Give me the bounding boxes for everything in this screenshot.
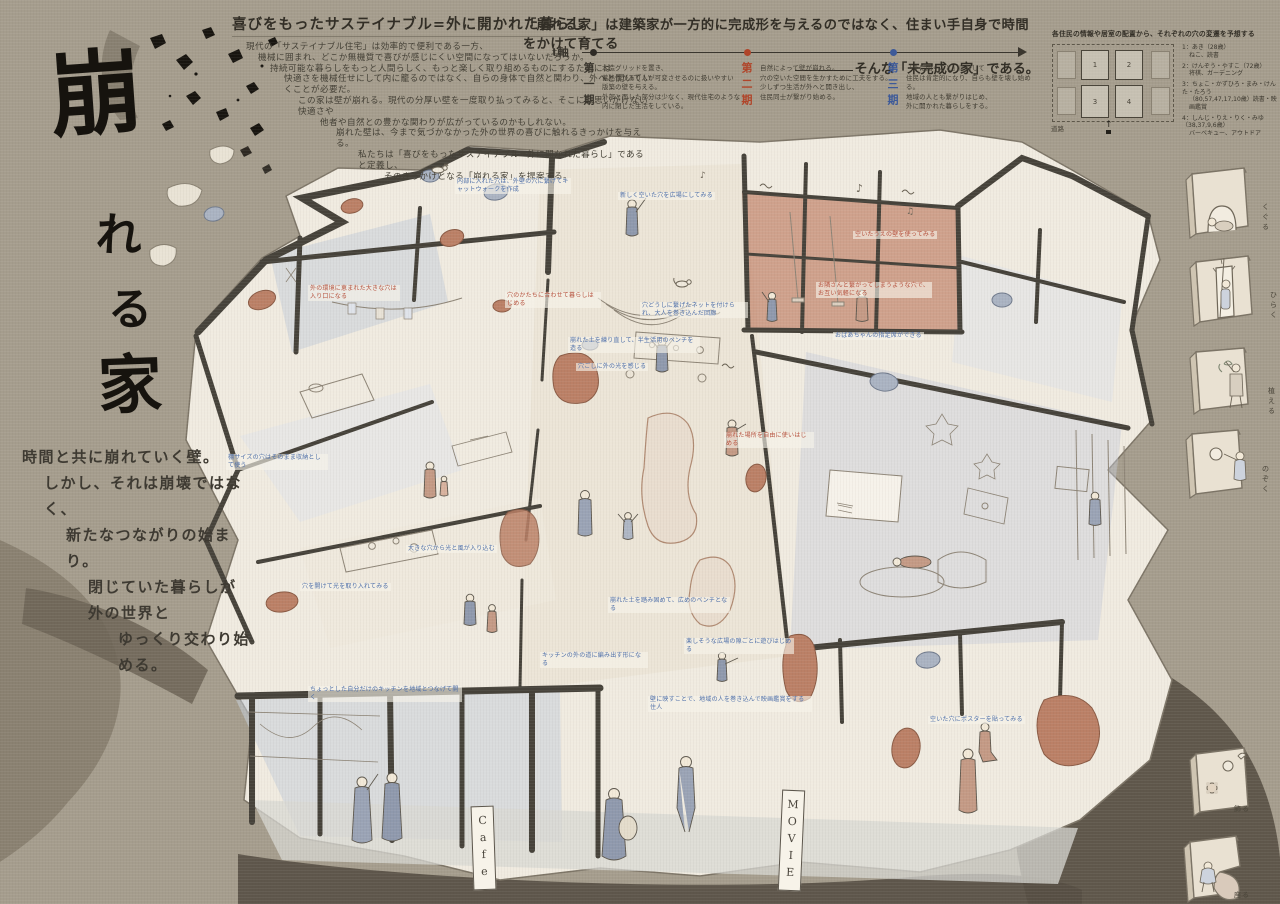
- title-char-kuzu: 崩: [47, 45, 145, 143]
- svg-text:♪: ♪: [856, 182, 863, 195]
- cafe-sign: Cafe: [471, 806, 497, 891]
- annotation-label: 空いたうえの壁を使ってみる: [853, 231, 937, 239]
- annotation-label: 穴のかたちに合わせて暮らしはじめる: [505, 292, 601, 308]
- resident-name: 2：けんぞう・やすこ（72歳）: [1182, 63, 1278, 71]
- residents-legend: 各住民の情報や居室の配置から、それぞれの穴の変遷を予想する 1 2 3 4 道路…: [1052, 28, 1278, 141]
- vignette-kuguru: くぐる: [1180, 162, 1276, 242]
- period-2-line: 少しずつ生活が外へと開き出し、: [760, 83, 892, 93]
- plan-outer-cell: [1151, 51, 1170, 79]
- plan-outer-cell: [1057, 51, 1076, 79]
- period-1-line: 版築の壁を与える。: [602, 83, 740, 93]
- annotation-label: 外の環境に恵まれた大きな穴は入り口になる: [308, 285, 400, 301]
- title-char-ru: る: [108, 288, 152, 332]
- svg-text:♫: ♫: [906, 207, 914, 217]
- period-2-line: 自然によって壁が崩れる。: [760, 64, 892, 74]
- annotation-label: ちょっとした自分だけのキッチンを地域とつなげて開く: [308, 686, 462, 702]
- annotation-label: 穴どうしに繋げたネットを付けられ、大人を巻き込んだ回廊: [640, 302, 748, 318]
- vignette-hiraku: ひらく: [1186, 248, 1280, 328]
- period-3-label: 第三期: [884, 62, 900, 136]
- poem-block: 時間と共に崩れていく壁。 しかし、それは崩壊ではなく、 新たなつながりの始まり。…: [22, 444, 252, 678]
- t-axis-label: t軸: [552, 44, 569, 60]
- plan-cell-2: 2: [1115, 50, 1143, 80]
- period-2-line: 住民同士が繋がり始める。: [760, 93, 892, 103]
- period-2-line: 穴の空いた空間を生かすために工夫をする。: [760, 74, 892, 84]
- period-3: 第三期 「外に開くこと」に対して 住民は肯定的になり、自らも壁を壊し始める。 地…: [884, 62, 1040, 136]
- period2-dot: [744, 49, 751, 56]
- annotation-label: 新しく空いた穴を広場にしてみる: [618, 192, 715, 200]
- vignette-nozoku-drawing: [1180, 420, 1258, 500]
- vignette-ueru-drawing: [1184, 338, 1262, 418]
- annotation-label: 大きな穴から光と風が入り込む: [406, 545, 497, 553]
- annotation-label: 崩れた土を踏み固めて、広めのベンチとなる: [608, 597, 730, 613]
- period-1-label: 第一期: [580, 62, 596, 136]
- resident-name: 3：ちょこ・かずひろ・まみ・けんた・たろう: [1182, 81, 1278, 96]
- residents-list: 1：あき（28歳） ねこ、読書 2：けんぞう・やすこ（72歳） 将棋、ガーデニン…: [1182, 44, 1278, 141]
- intro-line: 私たちは「喜びをもったサステイナブル=外に開かれた暮らし」であると定義し、: [358, 150, 652, 172]
- poem-line: しかし、それは崩壊ではなく、: [44, 470, 252, 522]
- t-axis-arrowhead: [1018, 47, 1027, 57]
- vignette-label: 飾る: [1234, 804, 1250, 814]
- road-label: 道路: [1051, 123, 1064, 133]
- vignette-label: くぐる: [1262, 202, 1276, 232]
- title-char-ie: 家: [97, 353, 163, 419]
- legend-title: 各住民の情報や居室の配置から、それぞれの穴の変遷を予想する: [1052, 28, 1278, 38]
- timeline: t軸 第一期 木造グリッドを置き、 蓄熱性があり人が可変させるのに扱いやすい 版…: [548, 42, 1040, 142]
- period-1-line: 外部と面した部分は少なく、現代住宅のような: [602, 93, 740, 103]
- resident-entry: 1：あき（28歳） ねこ、読書: [1182, 44, 1278, 59]
- entrance-arrow-icon: ↑: [1105, 121, 1113, 134]
- vignette-suwaru: 座る: [1178, 826, 1274, 904]
- poem-line: 新たなつながりの始まり。: [66, 522, 252, 574]
- period-1-line: 内に閉じた生活をしている。: [602, 102, 740, 112]
- period-2-label: 第二期: [738, 62, 754, 136]
- plan-outer-cell: [1151, 87, 1170, 115]
- period3-dot: [890, 49, 897, 56]
- annotation-label: 空いた穴にポスターを貼ってみる: [928, 716, 1025, 724]
- svg-text:♪: ♪: [700, 171, 706, 181]
- resident-entry: 2：けんぞう・やすこ（72歳） 将棋、ガーデニング: [1182, 63, 1278, 78]
- presentation-board: ♪ ♪ ♫ 崩 れ る 家 喜びをもったサステイナ: [0, 0, 1280, 904]
- annotation-label: 棚サイズの穴はそのまま収納として使う: [226, 454, 328, 470]
- annotation-label: 崩れた場所を自由に使いはじめる: [724, 432, 814, 448]
- period1-dot: [590, 49, 597, 56]
- vignette-kazaru: 飾る: [1184, 738, 1280, 818]
- vignette-label: のぞく: [1262, 464, 1276, 494]
- annotation-label: おばあちゃんの指定席ができる: [833, 332, 924, 340]
- vignette-label: ひらく: [1270, 290, 1280, 320]
- annotation-label: 穴ごしに外の光を感じる: [576, 363, 648, 371]
- annotation-label: 内部に入れた穴は、外壁の穴に繋げてキャットウォークを作成: [455, 178, 571, 194]
- annotation-label: キッチンの外の道に編み出す形になる: [540, 652, 648, 668]
- poem-line: 時間と共に崩れていく壁。: [22, 444, 252, 470]
- annotation-label: 崩れた土を練り直して、半生活用のベンチを造る: [568, 337, 700, 353]
- title-char-re: れ: [95, 211, 143, 259]
- period-1-line: 木造グリッドを置き、: [602, 64, 740, 74]
- plan-outer-cell: [1057, 87, 1076, 115]
- plan-cell-3: 3: [1081, 85, 1109, 118]
- period-3-line: 住民は肯定的になり、自らも壁を壊し始める。: [906, 74, 1040, 93]
- annotation-label: 壁に映すことで、地域の人を巻き込んで映画鑑賞をする住人: [648, 696, 812, 712]
- vignette-kuguru-drawing: [1180, 162, 1258, 242]
- resident-name: 1：あき（28歳）: [1182, 44, 1278, 52]
- period-3-line: 地域の人とも繋がりはじめ、: [906, 93, 1040, 103]
- resident-hobby: 将棋、ガーデニング: [1182, 70, 1278, 78]
- plan-cell-4: 4: [1115, 85, 1143, 118]
- resident-hobby: ねこ、読書: [1182, 52, 1278, 60]
- annotation-label: 穴を開けて光を取り入れてみる: [300, 583, 391, 591]
- resident-entry: 4：しんじ・りえ・りく・みゆ（38,37,9,6歳） バーベキュー、アウトドア: [1182, 115, 1278, 138]
- resident-hobby: バーベキュー、アウトドア: [1182, 130, 1278, 138]
- vignette-label: 植える: [1268, 386, 1280, 416]
- vignette-nozoku: のぞく: [1180, 420, 1276, 500]
- vignette-hiraku-drawing: [1186, 248, 1264, 328]
- period-2: 第二期 自然によって壁が崩れる。 穴の空いた空間を生かすために工夫をする。 少し…: [738, 62, 892, 136]
- poem-line: 閉じていた暮らしが外の世界と: [88, 574, 252, 626]
- annotation-label: お隣さんと繋がってしまうような穴で、お互い気軽になる: [816, 282, 932, 298]
- vignette-label: 座る: [1234, 890, 1250, 900]
- poem-line: ゆっくり交わり始める。: [118, 626, 252, 678]
- resident-entry: 3：ちょこ・かずひろ・まみ・けんた・たろう （80,57,47,17,10歳）読…: [1182, 81, 1278, 111]
- period-1: 第一期 木造グリッドを置き、 蓄熱性があり人が可変させるのに扱いやすい 版築の壁…: [580, 62, 740, 136]
- period-1-line: 蓄熱性があり人が可変させるのに扱いやすい: [602, 74, 740, 84]
- paper-scraps: [150, 146, 234, 266]
- t-axis-line: [582, 52, 1020, 53]
- resident-hobby: （80,57,47,17,10歳）読書・映画鑑賞: [1182, 96, 1278, 111]
- plan-cell-1: 1: [1081, 50, 1109, 80]
- period-3-line: 外に開かれた暮らしをする。: [906, 102, 1040, 112]
- period-3-line: 「外に開くこと」に対して: [906, 64, 1040, 74]
- vignette-kazaru-drawing: [1184, 738, 1262, 818]
- floor-plan-diagram: 1 2 3 4 道路 ↑: [1052, 44, 1174, 122]
- resident-name: 4：しんじ・りえ・りく・みゆ（38,37,9,6歳）: [1182, 115, 1278, 130]
- annotation-label: 楽しそうな広場の隙ごとに遊びはじめる: [684, 638, 794, 654]
- vignette-ueru: 植える: [1184, 338, 1280, 418]
- movie-sign: MOVIE: [778, 790, 805, 892]
